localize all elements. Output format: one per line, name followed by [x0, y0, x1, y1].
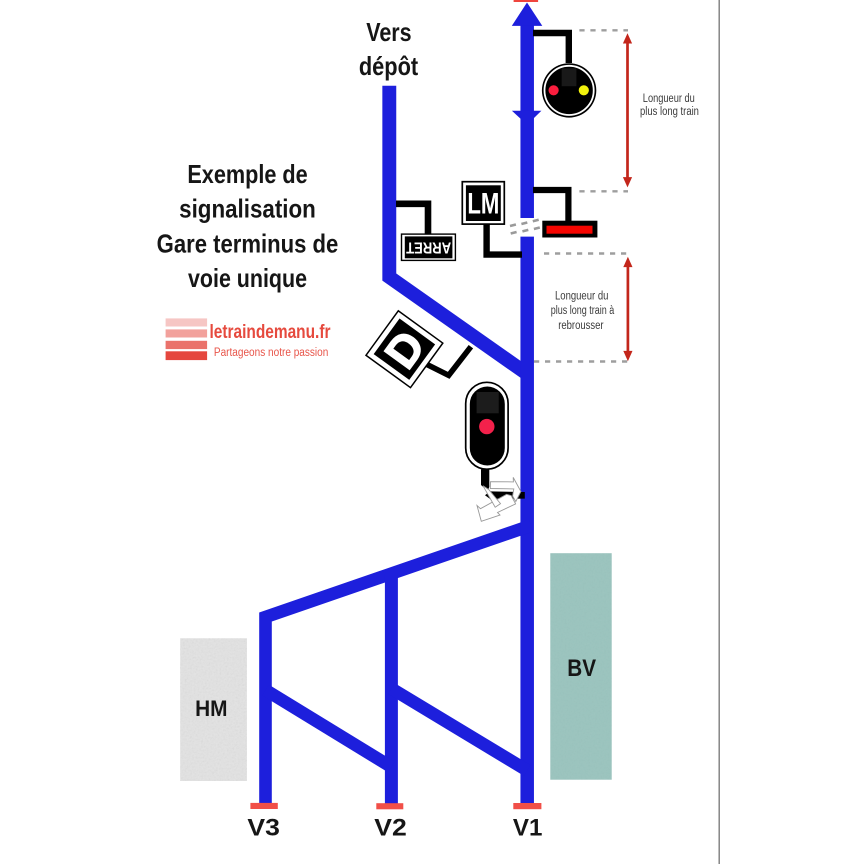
svg-text:Exemple de: Exemple de	[187, 159, 307, 189]
svg-text:Gare terminus de: Gare terminus de	[157, 228, 339, 258]
svg-text:letraindemanu.fr: letraindemanu.fr	[210, 322, 331, 343]
svg-text:ARRET: ARRET	[406, 238, 451, 255]
svg-text:Longueur du: Longueur du	[643, 93, 695, 105]
svg-text:V1: V1	[513, 815, 543, 842]
svg-text:V2: V2	[374, 815, 407, 842]
svg-text:BV: BV	[567, 655, 596, 682]
svg-text:plus long train à: plus long train à	[551, 305, 615, 317]
svg-text:Longueur du: Longueur du	[555, 291, 608, 303]
svg-text:rebrousser: rebrousser	[558, 320, 604, 332]
svg-text:V3: V3	[247, 815, 280, 842]
svg-text:Vers: Vers	[366, 17, 411, 47]
svg-text:signalisation: signalisation	[179, 194, 316, 224]
svg-text:dépôt: dépôt	[359, 51, 419, 81]
svg-text:Partageons notre passion: Partageons notre passion	[214, 347, 328, 359]
svg-text:HM: HM	[195, 696, 227, 721]
svg-text:plus long train: plus long train	[640, 106, 699, 118]
svg-text:LM: LM	[467, 187, 499, 220]
svg-text:voie unique: voie unique	[188, 263, 307, 293]
